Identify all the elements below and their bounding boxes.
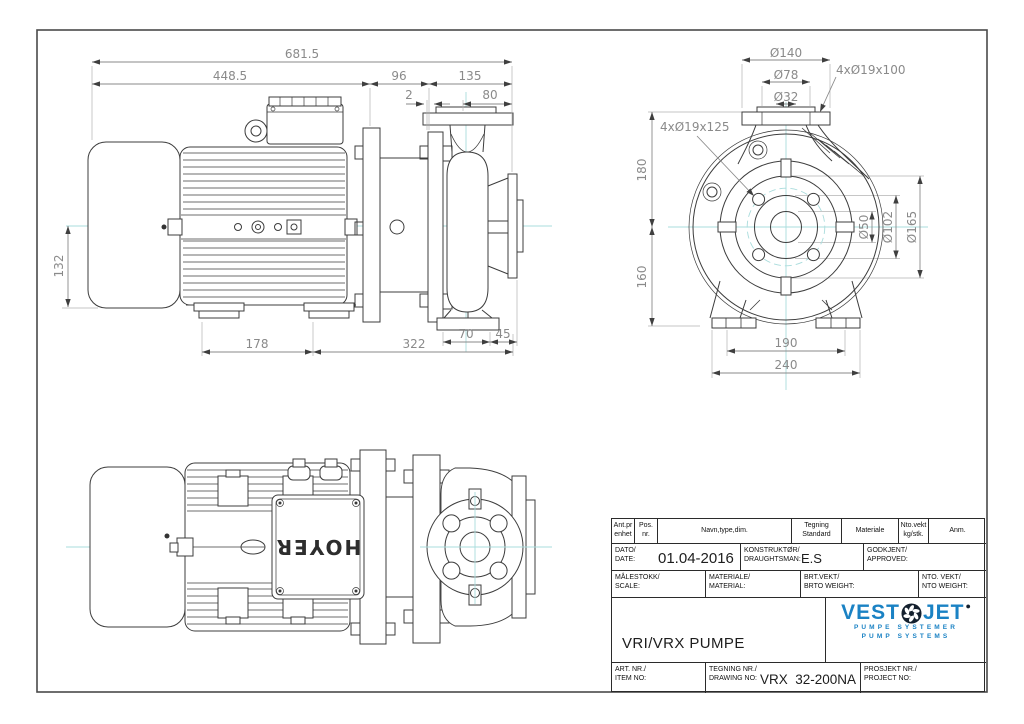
dim-above-axis: 180: [635, 159, 649, 182]
top-view: HOYER: [66, 450, 552, 644]
description-line-1: VRI/VRX PUMPE: [622, 636, 757, 653]
title-block: Ant.pr enhet Pos. nr. Navn,type,dim. Teg…: [611, 518, 985, 692]
front-centerlines: [668, 102, 928, 390]
brand-word-jet: JET: [923, 602, 965, 624]
dim-total-length: 681.5: [285, 47, 319, 61]
brand-logo: VEST JET ● PUMPE SYSTEMER: [826, 598, 986, 663]
drawing-no-value: VRX 32-200NA: [760, 672, 856, 687]
brand-word-vest: VEST: [841, 602, 900, 624]
dim-foot-length: 178: [246, 337, 269, 351]
header-material: Materiale: [842, 519, 899, 544]
net-weight-label: NTO. VEKT/ NTO WEIGHT:: [922, 573, 968, 591]
draughtsman-label: KONSTRUKTØR/ DRAUGHTSMAN:: [744, 546, 801, 564]
dim-motor-length: 448.5: [213, 69, 247, 83]
dim-flange-od: Ø140: [770, 46, 802, 60]
gross-weight-cell: BRT.VEKT/ BRTO WEIGHT:: [801, 571, 919, 598]
gross-weight-label: BRT.VEKT/ BRTO WEIGHT:: [804, 573, 854, 591]
project-no-cell: PROSJEKT NR./ PROJECT NO:: [861, 663, 986, 693]
side-view: 681.5 448.5 96 135 2 80 132 178 322 70 4…: [52, 47, 552, 356]
description-cell: VRI/VRX PUMPE VRX 32-200NA 7,5 kW EL.MOT…: [612, 598, 826, 663]
brand-tagline-1: PUMPE SYSTEMER: [826, 624, 986, 633]
dim-base-length: 322: [403, 337, 426, 351]
drawing-sheet: 681.5 448.5 96 135 2 80 132 178 322 70 4…: [0, 0, 1024, 724]
dim-pump-foot: 70: [458, 327, 473, 341]
side-geometry: [88, 97, 523, 330]
header-standard: Tegning Standard: [792, 519, 842, 544]
header-note: Anm.: [929, 519, 986, 544]
dim-overhang: 45: [495, 327, 510, 341]
dim-below-axis: 160: [635, 266, 649, 289]
dim-spacer-length: 96: [391, 69, 406, 83]
brand-trademark-dot: ●: [965, 601, 970, 611]
dim-base-width: 240: [775, 358, 798, 372]
brand-cell: VEST JET ● PUMPE SYSTEMER: [826, 598, 986, 663]
dim-gap: 2: [405, 88, 413, 102]
material-label: MATERIALE/ MATERIAL:: [709, 573, 750, 591]
draughtsman-cell: KONSTRUKTØR/ DRAUGHTSMAN: E.S: [741, 544, 864, 571]
dim-bolts-top: 4xØ19x100: [836, 63, 905, 77]
dim-bore: Ø32: [774, 90, 799, 104]
dim-bolts-main: 4xØ19x125: [660, 120, 729, 134]
date-value: 01.04-2016: [658, 550, 734, 567]
dim-d50: Ø50: [857, 215, 871, 240]
dim-d165: Ø165: [905, 211, 919, 243]
date-cell: DATO/ DATE: 01.04-2016: [612, 544, 741, 571]
draughtsman-value: E.S: [801, 551, 822, 566]
header-net-weight: Nto.vekt kg/stk.: [899, 519, 929, 544]
item-no-cell: ART. NR./ ITEM NO:: [612, 663, 706, 693]
approved-cell: GODKJENT/ APPROVED:: [864, 544, 986, 571]
dim-pump-length: 135: [459, 69, 482, 83]
brand-tagline-2: PUMP SYSTEMS: [826, 633, 986, 642]
header-pos: Pos. nr.: [635, 519, 658, 544]
approved-label: GODKJENT/ APPROVED:: [867, 546, 908, 564]
scale-cell: MÅLESTOKK/ SCALE:: [612, 571, 706, 598]
header-qty: Ant.pr enhet: [612, 519, 635, 544]
date-label: DATO/ DATE:: [615, 546, 636, 564]
dim-foot-span: 190: [775, 336, 798, 350]
item-no-label: ART. NR./ ITEM NO:: [615, 665, 646, 683]
front-view: Ø140 Ø78 Ø32 4xØ19x100 4xØ19x125 180 160…: [635, 46, 928, 390]
project-no-label: PROSJEKT NR./ PROJECT NO:: [864, 665, 917, 683]
drawing-no-label: TEGNING NR./ DRAWING NO:: [709, 665, 757, 683]
header-name: Navn,type,dim.: [658, 519, 792, 544]
net-weight-cell: NTO. VEKT/ NTO WEIGHT:: [919, 571, 986, 598]
dim-flange-bc: Ø78: [774, 68, 799, 82]
motor-brand-label: HOYER: [275, 535, 362, 559]
impeller-icon: [901, 603, 922, 624]
drawing-no-cell: TEGNING NR./ DRAWING NO: VRX 32-200NA: [706, 663, 861, 693]
dim-d102: Ø102: [881, 211, 895, 243]
material-cell: MATERIALE/ MATERIAL:: [706, 571, 801, 598]
scale-label: MÅLESTOKK/ SCALE:: [615, 573, 660, 591]
dim-flange-offset: 80: [482, 88, 497, 102]
dim-axis-height: 132: [52, 255, 66, 278]
